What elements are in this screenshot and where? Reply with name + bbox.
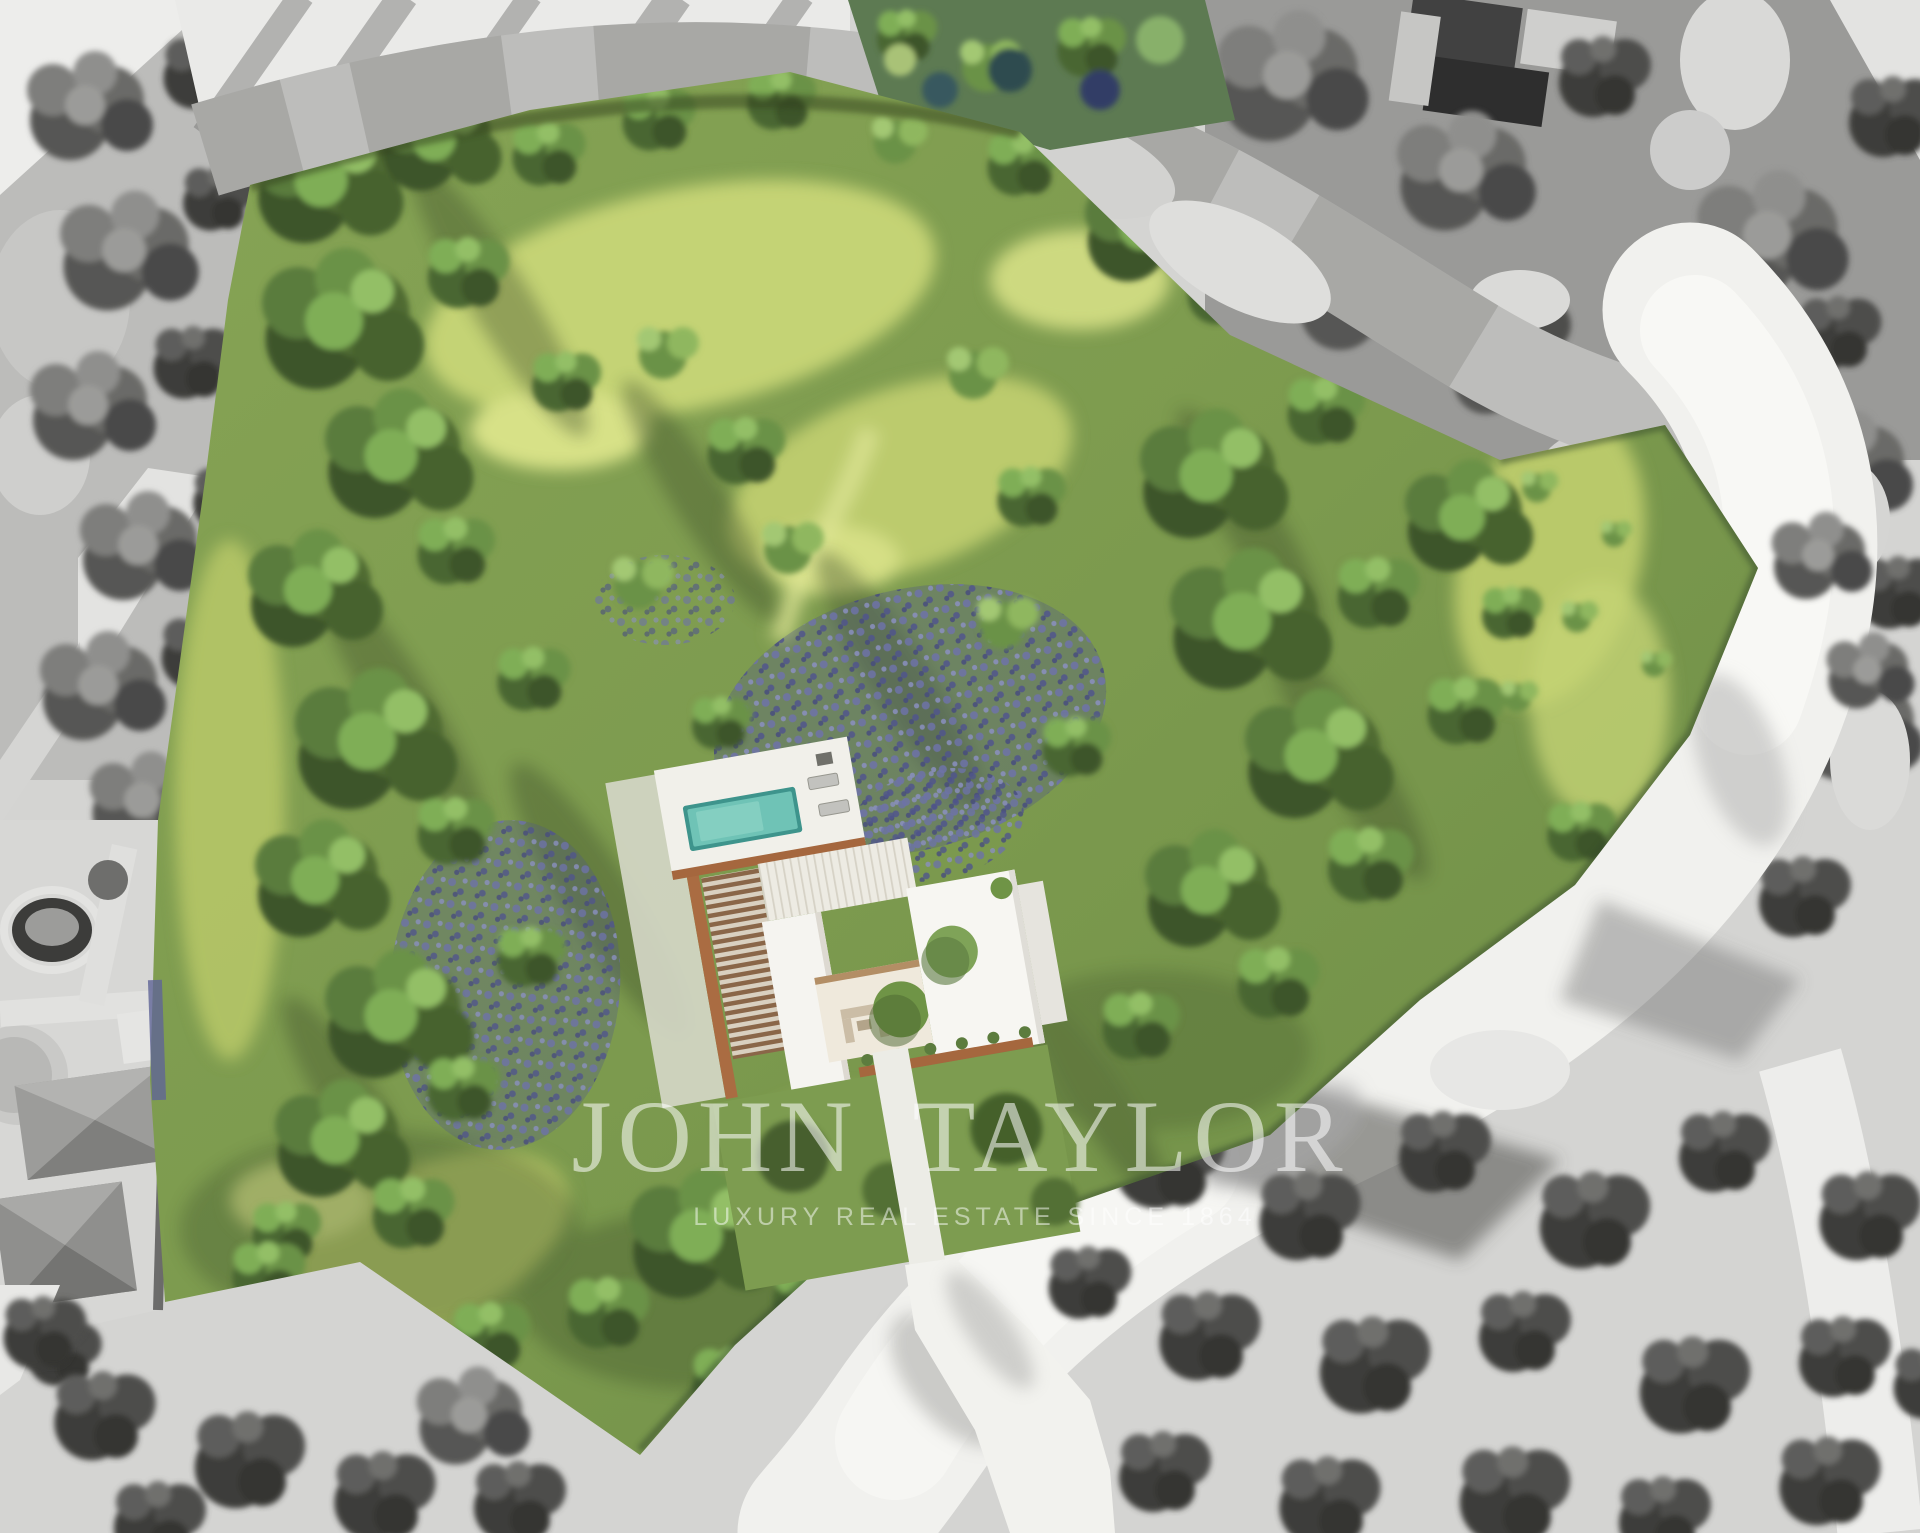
aerial-scene xyxy=(0,0,1920,1533)
aerial-property-render: JOHN TAYLOR LUXURY REAL ESTATE SINCE 186… xyxy=(0,0,1920,1533)
